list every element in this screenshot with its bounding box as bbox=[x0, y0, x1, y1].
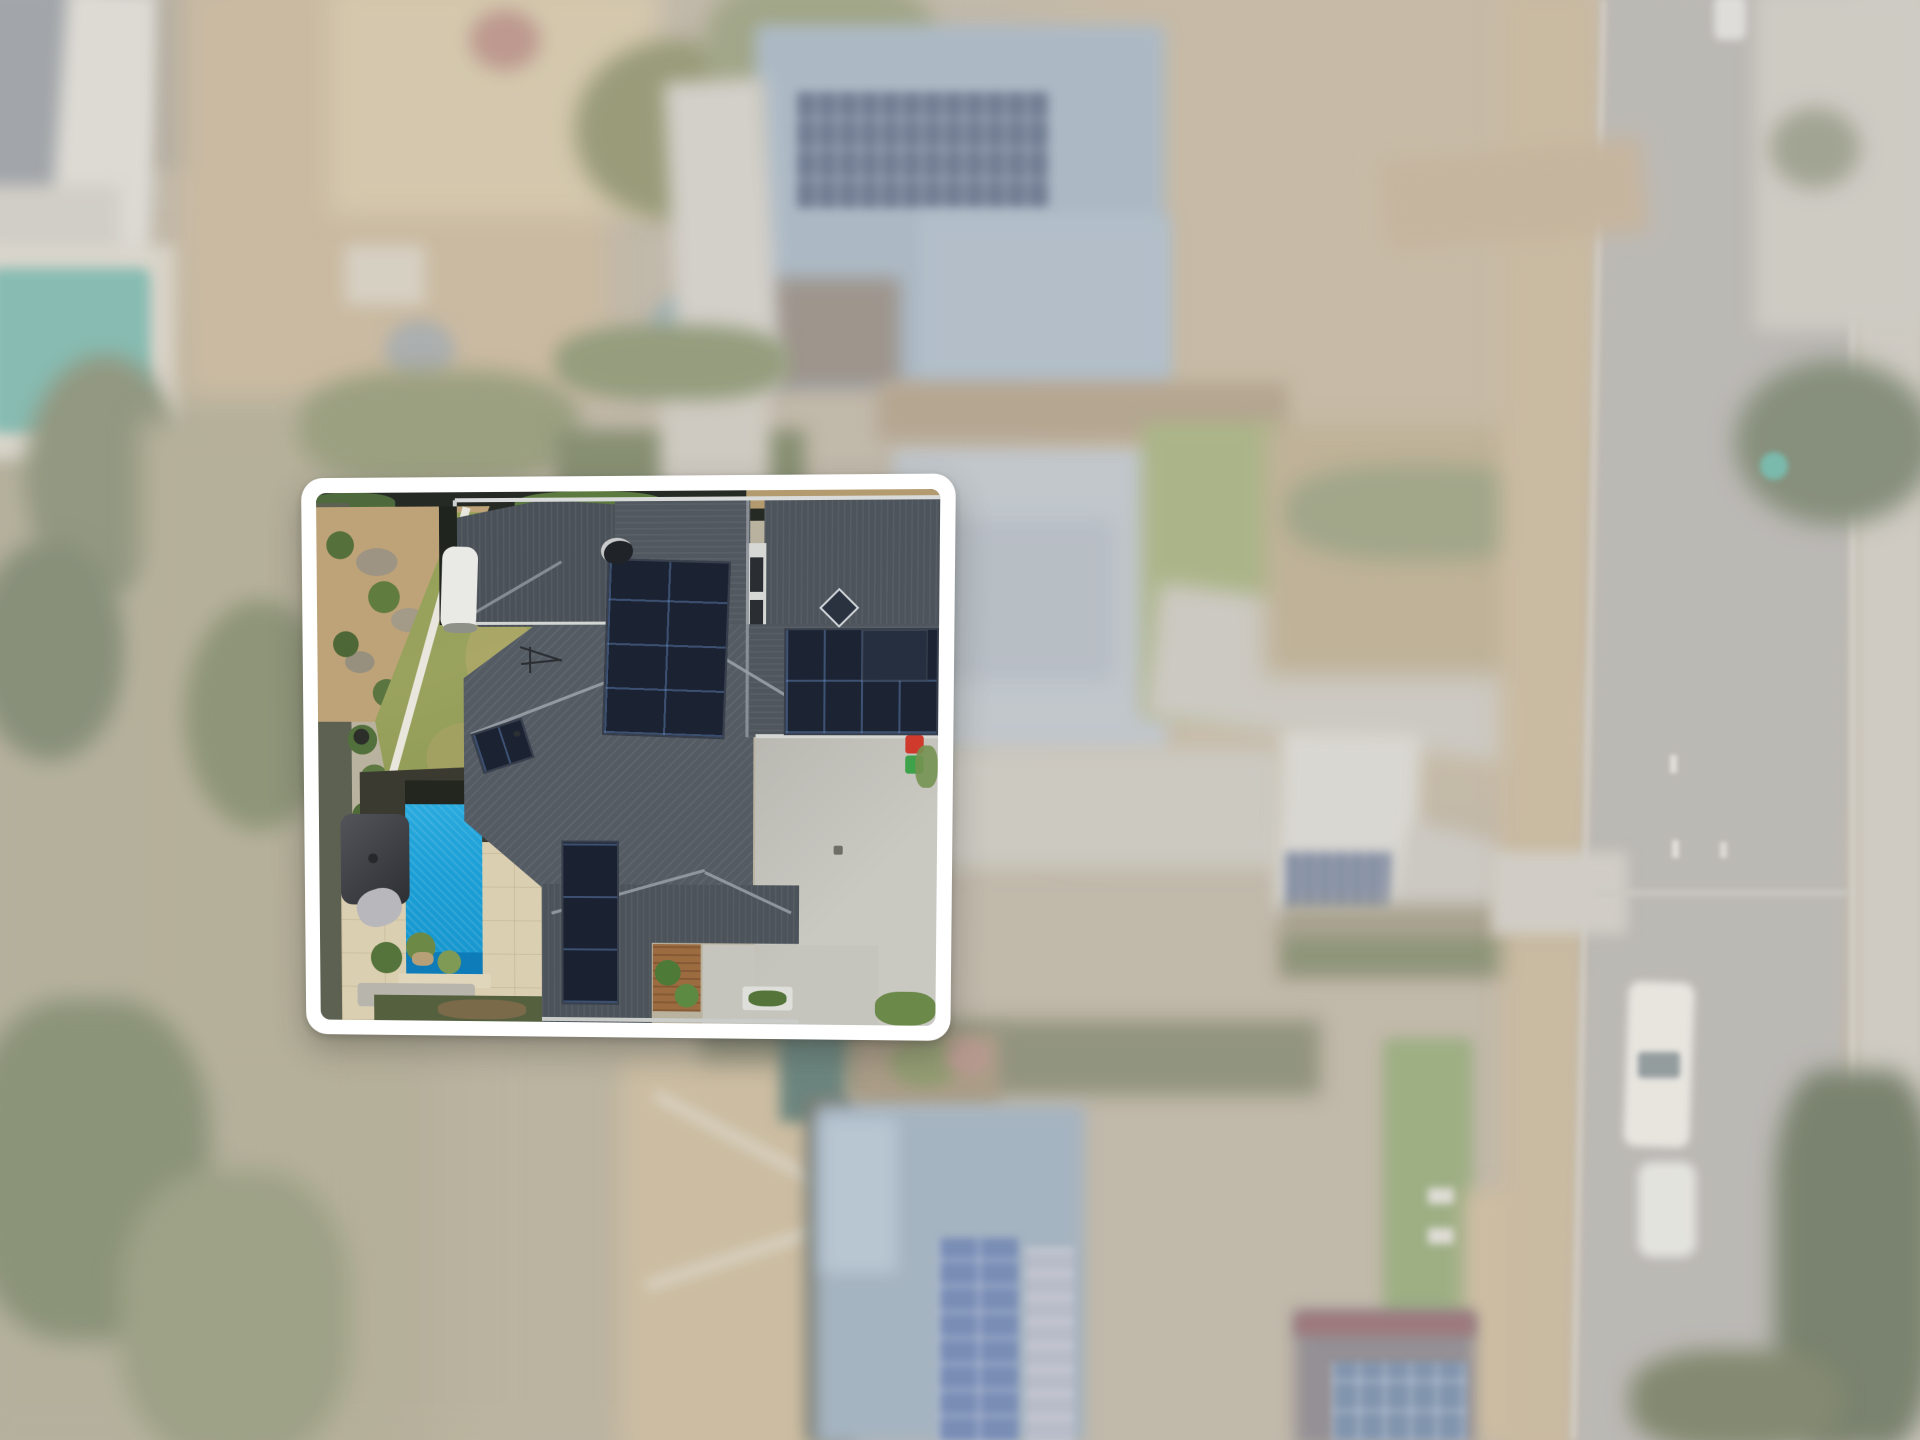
shrub-right-edge bbox=[915, 745, 938, 787]
solar-array-bottom-silver bbox=[1026, 1248, 1074, 1440]
car-top-right bbox=[1714, 0, 1746, 40]
solar-array-bottom-blue bbox=[938, 1238, 1018, 1440]
deck-shrub-2 bbox=[675, 984, 699, 1008]
window-pane-1 bbox=[750, 557, 763, 592]
van-windshield bbox=[1638, 1052, 1680, 1078]
solar-panel-plain-dark bbox=[862, 630, 928, 681]
parked-car-white bbox=[1638, 1162, 1696, 1257]
road-centerline-dash-3 bbox=[1720, 842, 1727, 858]
bottom-right-roof-maroon-edge bbox=[1295, 1312, 1475, 1336]
aerial-scene bbox=[0, 0, 1920, 1440]
garden-rock-1 bbox=[356, 548, 398, 576]
hedge-row-center bbox=[555, 325, 790, 400]
tree-shadow-footpath-top bbox=[1770, 108, 1860, 188]
garden-hose-reel bbox=[353, 729, 369, 745]
solar-array-mid-right bbox=[1284, 852, 1392, 910]
roof-vent-whirlybird bbox=[601, 538, 633, 564]
road-seam-horizontal bbox=[1595, 890, 1850, 896]
solar-array-top-house bbox=[795, 92, 1050, 210]
subject-roof-hip-shade bbox=[935, 520, 1115, 680]
bird-on-roof bbox=[513, 731, 520, 737]
road-centerline-dash-2 bbox=[1672, 840, 1679, 858]
potted-plant-2 bbox=[371, 942, 403, 974]
garden-shrub-2 bbox=[368, 581, 400, 613]
planter-greenery bbox=[748, 990, 786, 1006]
solar-array-bottom-center bbox=[561, 840, 619, 1004]
solar-array-bottom-right bbox=[1332, 1362, 1467, 1440]
shrubs-above-inset bbox=[300, 370, 580, 485]
bottom-house-roof-light-face bbox=[822, 1118, 897, 1273]
deck-shrub-1 bbox=[655, 960, 681, 986]
corner-shrubs-bottom-right bbox=[875, 992, 936, 1026]
clothesline-pad bbox=[345, 245, 425, 305]
road-centerline-dash-1 bbox=[1670, 755, 1677, 773]
tv-antenna-mast bbox=[529, 647, 531, 673]
pool-steps-white-2 bbox=[1428, 1228, 1454, 1244]
property-highlight-card bbox=[301, 473, 956, 1041]
roof-top-lower-section bbox=[920, 215, 1170, 385]
garden-shrub-3 bbox=[333, 631, 359, 657]
subject-property-photo bbox=[316, 489, 940, 1026]
tree-right-bottom-2 bbox=[1630, 1350, 1840, 1440]
tree-right-of-road-top bbox=[1735, 360, 1920, 525]
solar-array-left-column bbox=[602, 558, 731, 739]
plant-pot-1 bbox=[412, 952, 434, 966]
pool-steps-white-1 bbox=[1428, 1188, 1454, 1204]
flowering-shrub-red bbox=[470, 10, 540, 70]
agave-plant bbox=[437, 950, 461, 974]
umbrella-center-pole bbox=[368, 853, 378, 863]
white-vehicle bbox=[440, 546, 478, 631]
hedge-bottom-brown bbox=[438, 999, 526, 1019]
teal-object-right bbox=[1760, 452, 1788, 480]
faded-neighborhood-background bbox=[0, 0, 1920, 1440]
vehicle-shadow bbox=[444, 623, 478, 633]
patio-drain-dot bbox=[834, 846, 843, 855]
garden-red-tinge bbox=[945, 1040, 990, 1075]
tree-mass-bottom-left-2 bbox=[120, 1170, 350, 1440]
concrete-shade bbox=[754, 737, 938, 1026]
garden-shrub-1 bbox=[326, 531, 354, 559]
